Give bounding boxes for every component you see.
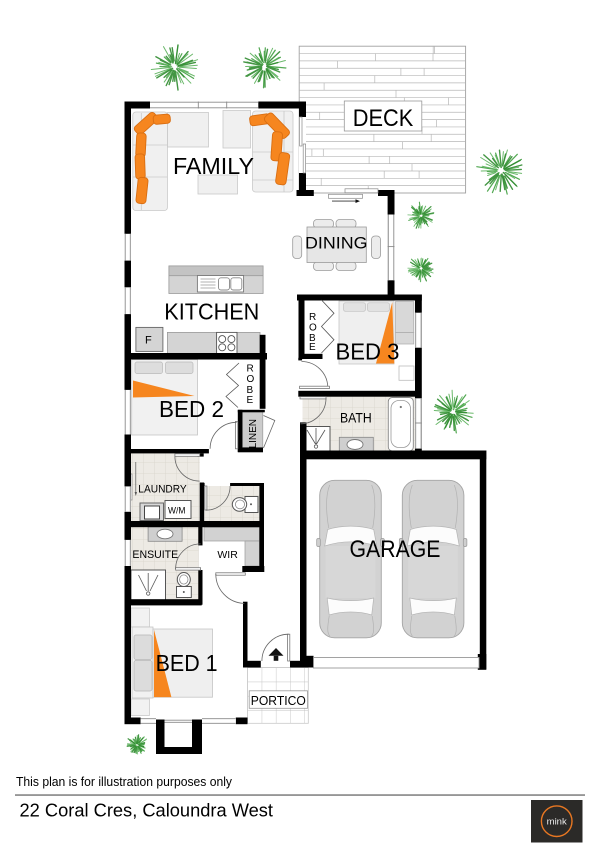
svg-text:E: E xyxy=(309,342,316,353)
svg-text:E: E xyxy=(247,395,254,406)
svg-text:R: R xyxy=(247,364,254,375)
svg-text:KITCHEN: KITCHEN xyxy=(164,299,259,325)
svg-text:mink: mink xyxy=(547,817,567,828)
svg-text:ENSUITE: ENSUITE xyxy=(132,549,178,561)
svg-text:This plan is for illustration: This plan is for illustration purposes o… xyxy=(16,775,233,789)
svg-text:O: O xyxy=(309,323,317,334)
svg-text:LAUNDRY: LAUNDRY xyxy=(138,484,187,496)
svg-text:BED 3: BED 3 xyxy=(336,338,400,364)
svg-text:PORTICO: PORTICO xyxy=(251,693,306,708)
svg-text:BED 2: BED 2 xyxy=(159,396,224,422)
svg-text:FAMILY: FAMILY xyxy=(173,153,254,179)
svg-text:O: O xyxy=(247,374,255,385)
svg-text:W/M: W/M xyxy=(168,506,185,516)
svg-text:WIR: WIR xyxy=(217,549,238,561)
svg-text:R: R xyxy=(309,312,316,323)
svg-text:DECK: DECK xyxy=(353,105,414,132)
svg-text:BATH: BATH xyxy=(340,410,372,426)
svg-text:DINING: DINING xyxy=(305,234,368,253)
svg-text:22 Coral Cres, Caloundra West: 22 Coral Cres, Caloundra West xyxy=(20,800,274,821)
svg-text:F: F xyxy=(145,335,152,347)
svg-text:BED 1: BED 1 xyxy=(156,650,218,676)
svg-text:GARAGE: GARAGE xyxy=(350,536,441,563)
svg-text:LINEN: LINEN xyxy=(248,419,259,448)
